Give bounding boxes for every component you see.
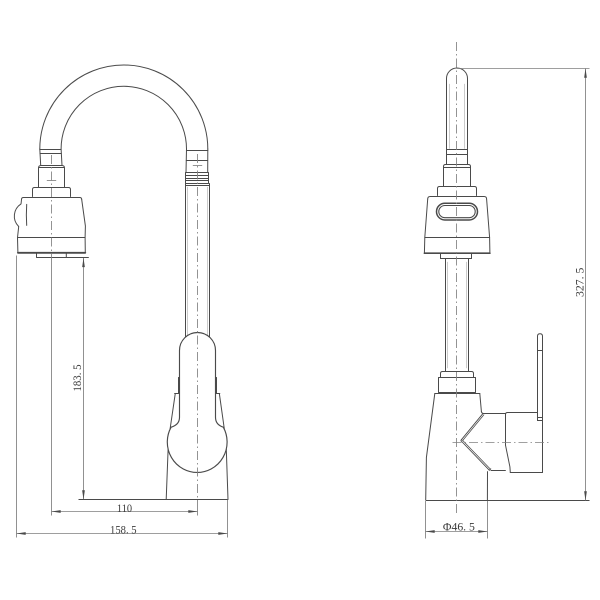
svg-text:Φ46. 5: Φ46. 5 [443, 522, 475, 534]
svg-text:110: 110 [117, 503, 132, 515]
svg-text:327. 5: 327. 5 [575, 267, 587, 297]
svg-text:183. 5: 183. 5 [72, 364, 84, 391]
svg-text:158. 5: 158. 5 [110, 524, 137, 536]
